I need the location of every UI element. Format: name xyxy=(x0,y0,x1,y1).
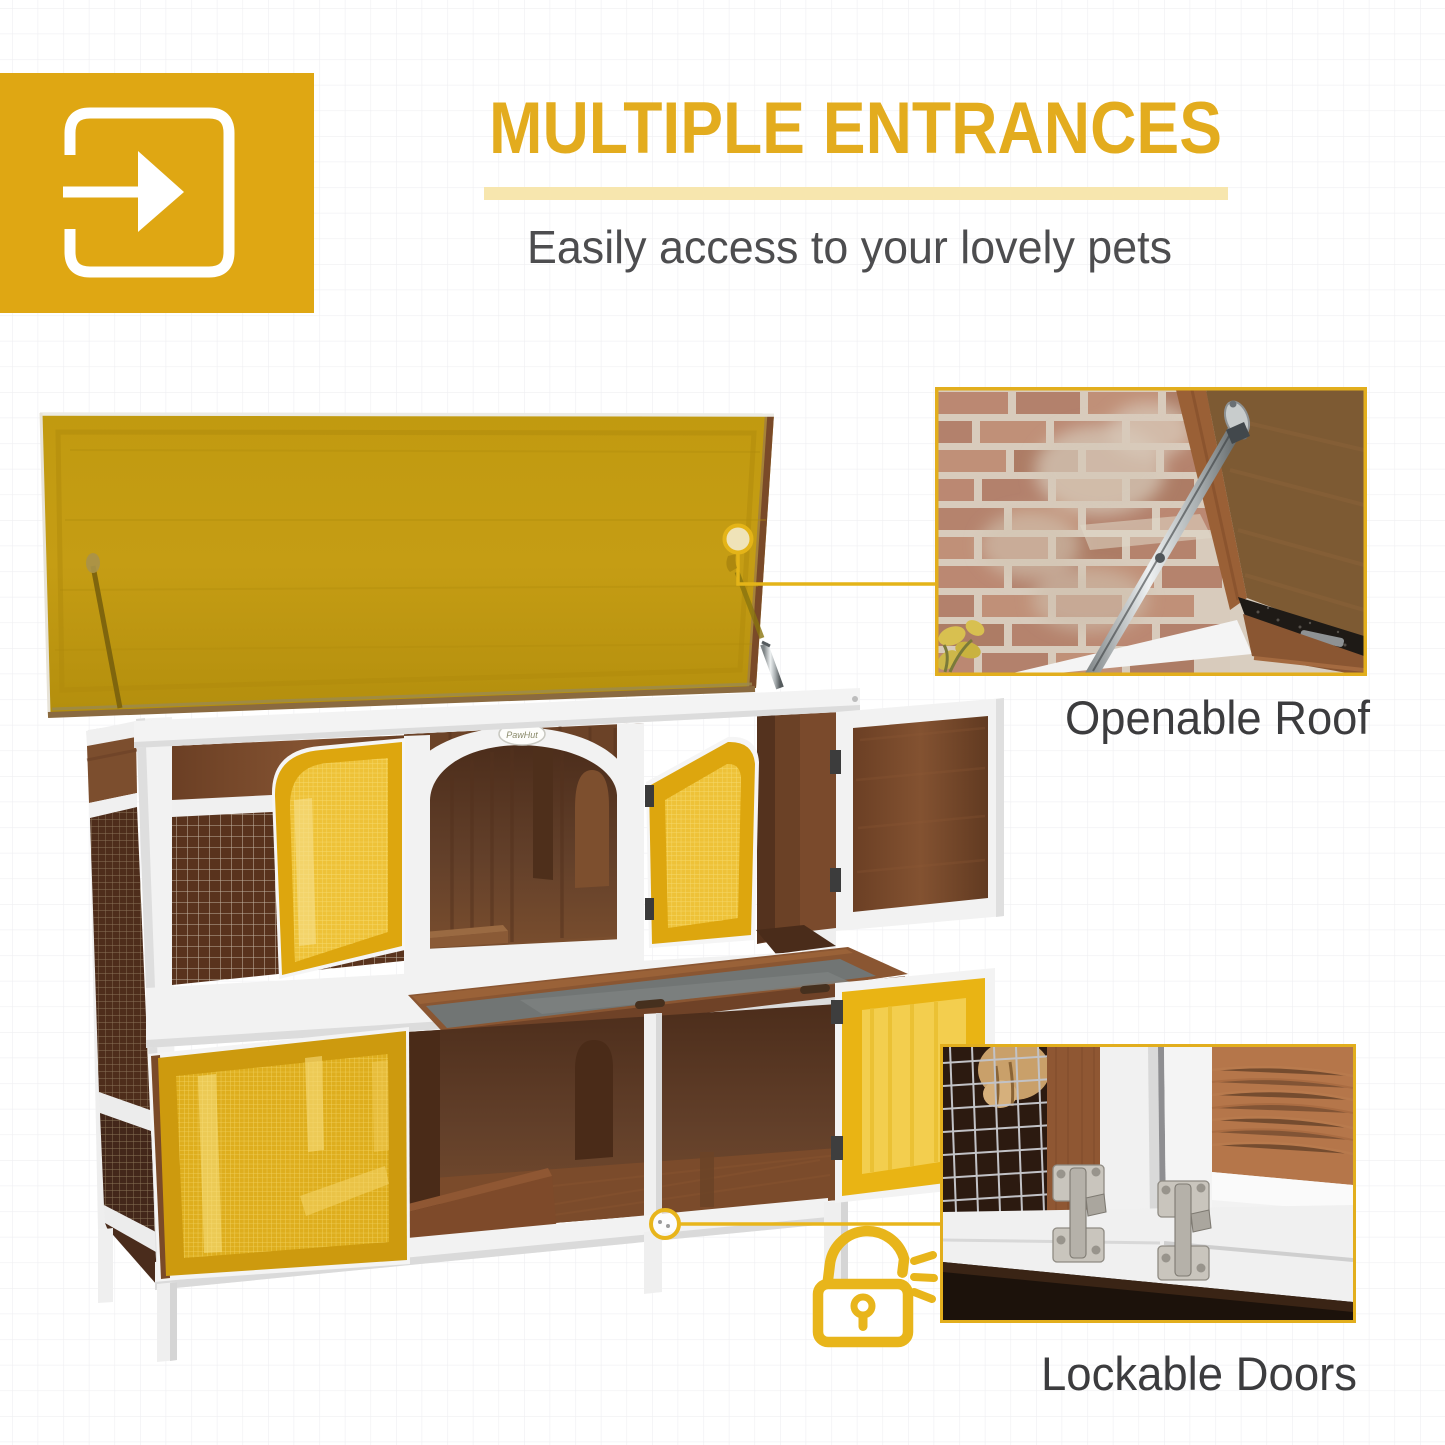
svg-text:Lockable Doors: Lockable Doors xyxy=(1041,1347,1357,1400)
svg-text:Easily access to your lovely p: Easily access to your lovely pets xyxy=(527,221,1172,273)
svg-text:MULTIPLE ENTRANCES: MULTIPLE ENTRANCES xyxy=(489,88,1222,169)
svg-text:PawHut: PawHut xyxy=(506,730,538,740)
svg-text:Openable Roof: Openable Roof xyxy=(1065,691,1371,744)
